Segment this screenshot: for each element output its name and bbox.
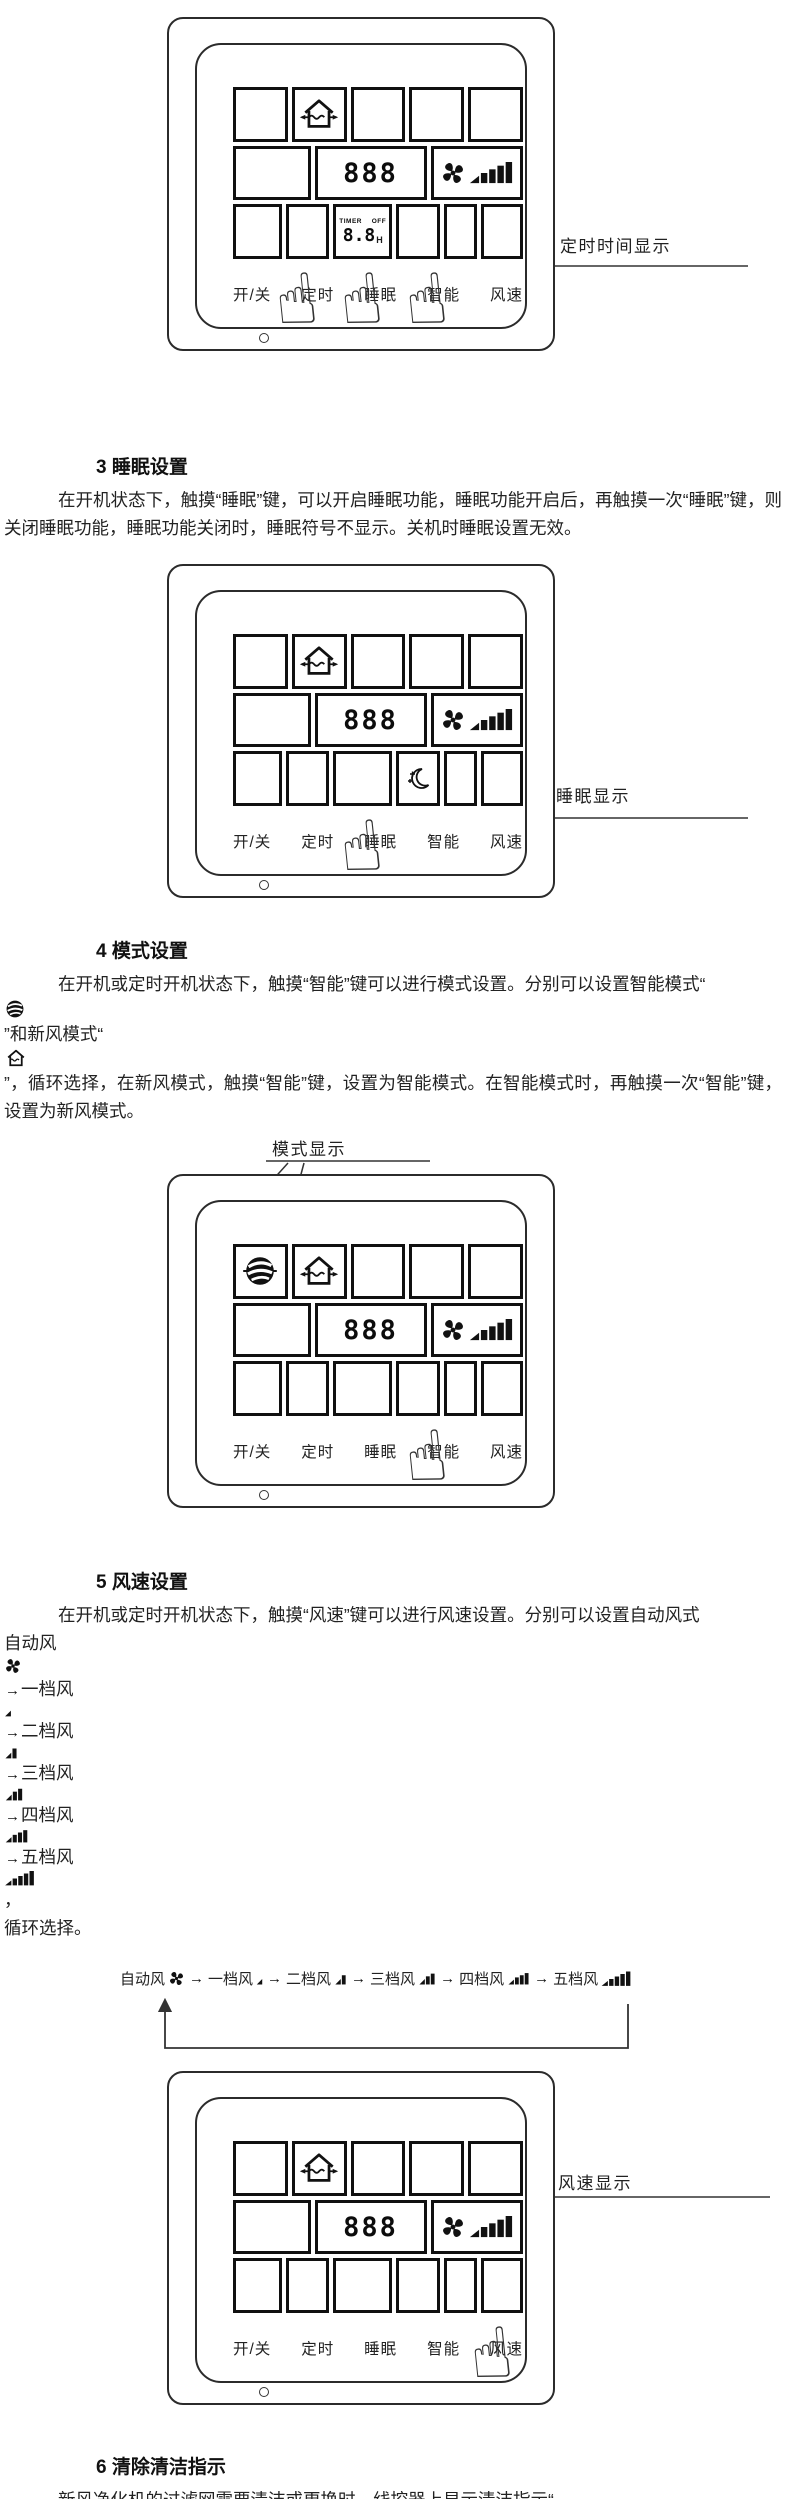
annotation-fan-speed-display: 风速显示 [558, 2169, 632, 2194]
sleep-indicator-cell [396, 751, 440, 806]
section-body: 在开机或定时开机状态下，触摸“智能”键可以进行模式设置。分别可以设置智能模式“”… [4, 970, 782, 1125]
lcd-cell [333, 2258, 392, 2313]
new-air-mode-icon [298, 2150, 340, 2187]
pointing-hand-icon: ☝ [337, 265, 386, 336]
fan-speed-bars-icon [469, 2216, 513, 2238]
body-text: ”，循环选择，在新风模式，触摸“智能”键，设置为智能模式。在智能模式时，再触摸一… [4, 1073, 782, 1121]
power-button[interactable]: 开/关 [233, 1440, 271, 1462]
section-body-fan-sequence: 自动风 →一档风 →二档风 →三档风 →四档风 →五档风， [4, 1629, 782, 1914]
lcd-display: 888 [233, 634, 523, 806]
fan-icon [440, 160, 466, 186]
lcd-cell: 888 [315, 2200, 427, 2255]
lcd-cell [286, 751, 330, 806]
lcd-cell [431, 146, 523, 201]
lcd-cell [233, 2141, 288, 2196]
indicator-led [259, 333, 269, 343]
timer-display-cell: TIMEROFF 8.8H [333, 204, 392, 259]
pointing-hand-icon: ☝ [272, 265, 321, 336]
cycle-item: 四档风 [459, 1968, 504, 1989]
annotation-timer-display: 定时时间显示 [560, 232, 671, 257]
fan-icon [440, 1317, 466, 1343]
cycle-item: 二档风 [286, 1968, 331, 1989]
smart-button[interactable]: 智能 [427, 2337, 460, 2359]
lcd-cell [444, 1361, 477, 1416]
lcd-cell [233, 1361, 282, 1416]
timer-label: TIMER [339, 218, 362, 225]
lcd-cell [233, 146, 311, 201]
section-heading: 4 模式设置 [96, 936, 782, 963]
cycle-item: 一档风 [208, 1968, 253, 1989]
section-sleep-setting: 3 睡眠设置 在开机状态下，触摸“睡眠”键，可以开启睡眠功能，睡眠功能开启后，再… [0, 452, 782, 542]
lcd-cell [468, 87, 523, 142]
pointing-hand-icon: ☝ [467, 2319, 516, 2390]
fan-speed-5-icon [601, 1971, 631, 1987]
sleep-button[interactable]: 睡眠 [364, 1440, 397, 1462]
lcd-cell [409, 2141, 464, 2196]
pointing-hand-icon: ☝ [402, 265, 451, 336]
lcd-cell [481, 204, 523, 259]
pointing-hand-icon: ☝ [402, 1422, 451, 1493]
body-text: 四档风 [21, 1805, 74, 1825]
lcd-cell [409, 1244, 464, 1299]
body-text: 自动风 [4, 1633, 57, 1653]
lcd-cell [333, 1361, 392, 1416]
fan-icon [4, 1657, 22, 1675]
annotation-sleep-display: 睡眠显示 [556, 782, 630, 807]
lcd-cell [468, 634, 523, 689]
arrow-icon: → [533, 1970, 550, 1987]
sleep-button[interactable]: 睡眠 [364, 2337, 397, 2359]
timer-button[interactable]: 定时 [301, 1440, 334, 1462]
lcd-cell [292, 634, 347, 689]
body-text: 五档风 [21, 1847, 74, 1867]
fan-speed-2-icon [4, 1745, 18, 1759]
section-mode-setting: 4 模式设置 在开机或定时开机状态下，触摸“智能”键可以进行模式设置。分别可以设… [0, 936, 782, 1125]
lcd-cell [333, 751, 392, 806]
section-clean-indication: 6 清除清洁指示 新风净化机的过滤网需要清洁或更换时，线控器上显示清洁指示“”；… [0, 2452, 782, 2499]
lcd-cell [233, 87, 288, 142]
fan-speed-bars-icon [469, 162, 513, 184]
section-body: 新风净化机的过滤网需要清洁或更换时，线控器上显示清洁指示“”；新风净化机清洁或更… [4, 2486, 782, 2499]
smart-mode-cell [233, 1244, 288, 1299]
figure-timer-display: 888 [0, 10, 790, 368]
indicator-led [259, 1490, 269, 1500]
arrow-icon: → [4, 1766, 21, 1783]
fan-speed-1-icon [256, 1972, 263, 1985]
lcd-cell [396, 204, 440, 259]
smart-button[interactable]: 智能 [427, 830, 460, 852]
timer-unit: H [376, 235, 383, 245]
fan-speed-button[interactable]: 风速 [490, 1440, 523, 1462]
lcd-cell [233, 2200, 311, 2255]
figure-sleep-display: 888 [0, 558, 790, 926]
fan-speed-sequence: 自动风 → 一档风 → 二档风 → 三档风 → 四档风 → 五档风 [120, 1968, 631, 1989]
body-text: 三档风 [21, 1763, 74, 1783]
section-body: 循环选择。 [4, 1914, 782, 1942]
fan-icon [440, 2214, 466, 2240]
lcd-cell [351, 2141, 406, 2196]
cycle-item: 三档风 [370, 1968, 415, 1989]
fan-speed-4-icon [507, 1972, 530, 1985]
fan-speed-button[interactable]: 风速 [490, 283, 523, 305]
lcd-cell [431, 693, 523, 748]
wall-controller: 888 [167, 564, 555, 898]
figure-mode-display: 模式显示 [0, 1129, 790, 1561]
temperature-digits: 888 [343, 158, 398, 189]
lcd-display: 888 [233, 2141, 523, 2313]
section-heading: 3 睡眠设置 [96, 452, 782, 479]
temperature-digits: 888 [343, 2212, 398, 2243]
lcd-cell [233, 204, 282, 259]
body-text: “ [700, 974, 706, 994]
timer-button[interactable]: 定时 [301, 2337, 334, 2359]
power-button[interactable]: 开/关 [233, 830, 271, 852]
lcd-cell [409, 634, 464, 689]
annotation-mode-display: 模式显示 [272, 1135, 346, 1160]
fan-speed-4-icon [4, 1829, 29, 1843]
fan-speed-cycle-diagram: 自动风 → 一档风 → 二档风 → 三档风 → 四档风 → 五档风 [0, 1956, 790, 2060]
fan-icon [168, 1970, 185, 1987]
cycle-item: 五档风 [553, 1968, 598, 1989]
body-text: 二档风 [21, 1721, 74, 1741]
lcd-cell [233, 2258, 282, 2313]
lcd-cell [468, 2141, 523, 2196]
arrow-icon: → [4, 1808, 21, 1825]
indicator-led [259, 880, 269, 890]
lcd-cell [233, 751, 282, 806]
section-heading: 6 清除清洁指示 [96, 2452, 782, 2479]
fan-speed-5-icon [4, 1871, 35, 1886]
new-air-mode-icon [298, 96, 340, 133]
section-heading: 5 风速设置 [96, 1567, 782, 1594]
section-body: 在开机状态下，触摸“睡眠”键，可以开启睡眠功能，睡眠功能开启后，再触摸一次“睡眠… [4, 486, 782, 542]
controller-face: 888 [195, 1200, 527, 1486]
lcd-cell [286, 204, 330, 259]
lcd-cell [444, 751, 477, 806]
arrow-icon: → [350, 1970, 367, 1987]
lcd-cell [292, 1244, 347, 1299]
lcd-cell [233, 1303, 311, 1358]
arrow-icon: → [439, 1970, 456, 1987]
wall-controller: 888 [167, 2071, 555, 2405]
lcd-cell: 888 [315, 1303, 427, 1358]
arrow-icon: → [4, 1724, 21, 1741]
arrow-icon: → [266, 1970, 283, 1987]
lcd-cell [444, 2258, 477, 2313]
timer-off-label: OFF [372, 218, 387, 225]
lcd-cell [481, 751, 523, 806]
lcd-cell [292, 2141, 347, 2196]
body-text: 在开机或定时开机状态下，触摸“智能”键可以进行模式设置。分别可以设置智能模式 [58, 974, 700, 994]
lcd-cell [444, 204, 477, 259]
sleep-moon-icon [405, 766, 431, 792]
lcd-cell [481, 1361, 523, 1416]
fan-speed-display-cell [431, 2200, 523, 2255]
indicator-led [259, 2387, 269, 2397]
lcd-cell: 888 [315, 693, 427, 748]
fan-icon [440, 707, 466, 733]
lcd-display: 888 [233, 1244, 523, 1416]
timer-button[interactable]: 定时 [301, 830, 334, 852]
power-button[interactable]: 开/关 [233, 2337, 271, 2359]
wall-controller: 888 [167, 1174, 555, 1508]
fan-speed-3-icon [418, 1972, 436, 1985]
fan-speed-bars-icon [469, 1319, 513, 1341]
section-body: 在开机或定时开机状态下，触摸“风速”键可以进行风速设置。分别可以设置自动风式 [4, 1601, 782, 1629]
fan-speed-2-icon [334, 1972, 347, 1985]
lcd-cell [351, 1244, 406, 1299]
body-text: ， [4, 1890, 22, 1910]
wall-controller: 888 [167, 17, 555, 351]
fan-speed-bars-icon [469, 709, 513, 731]
smart-mode-icon [4, 998, 26, 1020]
new-air-mode-icon [298, 643, 340, 680]
arrow-icon: → [4, 1850, 21, 1867]
lcd-cell [292, 87, 347, 142]
power-button[interactable]: 开/关 [233, 283, 271, 305]
lcd-cell [468, 1244, 523, 1299]
manual-page: 888 [0, 0, 790, 2499]
new-air-mode-icon [4, 1048, 28, 1069]
new-air-mode-icon [298, 1253, 340, 1290]
lcd-cell [396, 2258, 440, 2313]
arrow-icon: → [4, 1682, 21, 1699]
fan-speed-1-icon [4, 1703, 12, 1717]
lcd-cell [233, 634, 288, 689]
lcd-cell [286, 2258, 330, 2313]
lcd-cell [286, 1361, 330, 1416]
section-fan-speed-setting: 5 风速设置 在开机或定时开机状态下，触摸“风速”键可以进行风速设置。分别可以设… [0, 1567, 782, 1942]
pointing-hand-icon: ☝ [337, 812, 386, 883]
lcd-cell: 888 [315, 146, 427, 201]
smart-mode-icon [242, 1253, 278, 1289]
lcd-display: 888 [233, 87, 523, 259]
button-row: 开/关 定时 睡眠 智能 风速 [233, 1440, 523, 1462]
fan-speed-button[interactable]: 风速 [490, 830, 523, 852]
temperature-digits: 888 [343, 705, 398, 736]
cycle-item: 自动风 [120, 1968, 165, 1989]
lcd-cell [409, 87, 464, 142]
temperature-digits: 888 [343, 1315, 398, 1346]
lcd-cell [351, 634, 406, 689]
lcd-cell [481, 2258, 523, 2313]
arrow-icon: → [188, 1970, 205, 1987]
lcd-cell [351, 87, 406, 142]
body-text: 一档风 [21, 1679, 74, 1699]
lcd-cell [233, 693, 311, 748]
body-text: ”和新风模式“ [4, 1024, 103, 1044]
body-text: 新风净化机的过滤网需要清洁或更换时，线控器上显示清洁指示“ [58, 2490, 554, 2499]
lcd-cell [431, 1303, 523, 1358]
timer-digits: 8.8 [343, 225, 376, 246]
lcd-cell [396, 1361, 440, 1416]
fan-speed-3-icon [4, 1787, 24, 1801]
figure-fan-speed-display: 888 [0, 2066, 790, 2438]
